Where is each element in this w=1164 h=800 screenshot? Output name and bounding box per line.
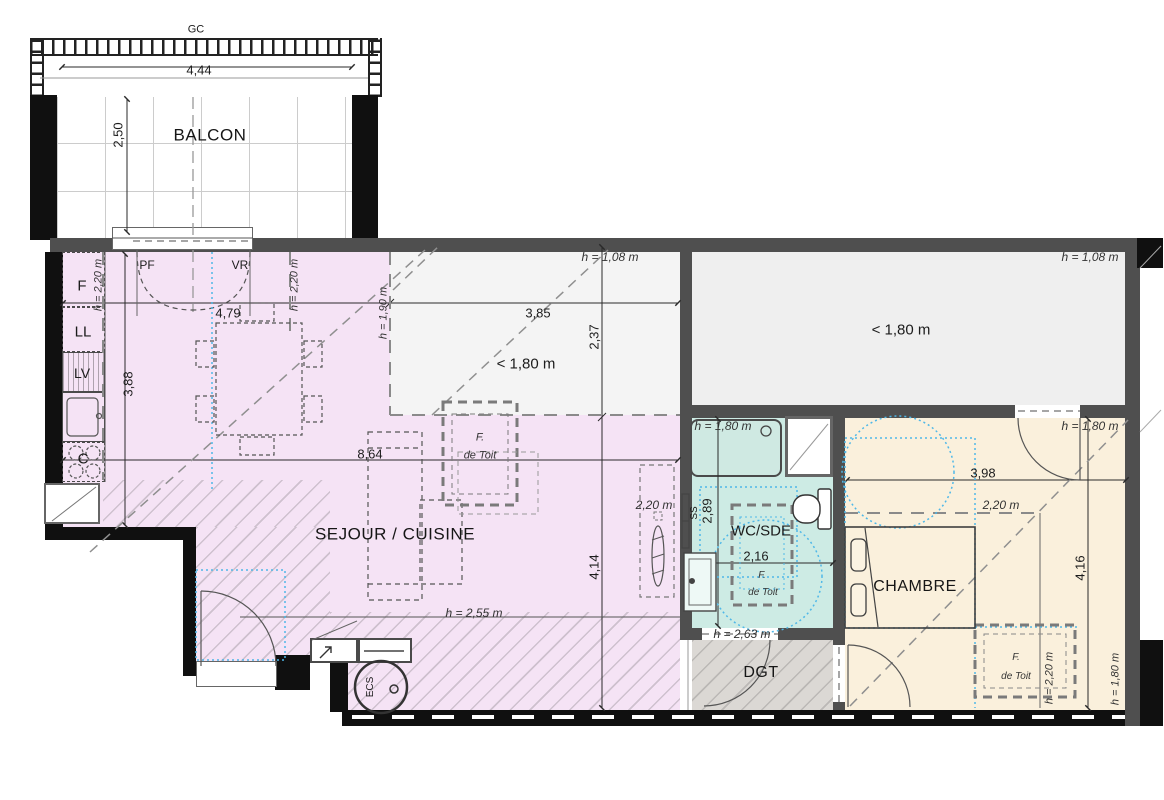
- balcony-floor: [57, 97, 352, 240]
- entry-door-sill: [196, 661, 277, 687]
- height-mid-108: h = 1,08 m: [581, 251, 638, 263]
- wall-right: [1125, 252, 1140, 726]
- room-label-sejour: SEJOUR / CUISINE: [315, 526, 475, 543]
- room-label-wc: WC/SDE: [731, 524, 791, 539]
- balcony-railing-top: [30, 38, 378, 56]
- roof-window-wc-l2: de Toit: [748, 588, 778, 598]
- height-wc-180: h = 1,80 m: [694, 420, 751, 432]
- floor-plan: GC 4,44 2,50 BALCON PF VR h = 2,20 m h =…: [0, 0, 1164, 800]
- balcony-wall-right: [352, 95, 378, 240]
- wall-mid-horizontal-left: [680, 405, 1015, 418]
- label-gc: GC: [188, 25, 205, 36]
- balcony-wall-left: [30, 95, 57, 240]
- entry-shelf: [358, 638, 412, 663]
- chambre-side-door-opening: [833, 645, 845, 702]
- dim-balcony-width: 4,44: [186, 64, 211, 77]
- wall-right-black-bottom: [1140, 640, 1163, 726]
- wall-wc-chambre-stub: [833, 702, 845, 710]
- height-right-108: h = 1,08 m: [1061, 251, 1118, 263]
- roof-window-wc-l1: F.: [758, 571, 766, 581]
- balcony-door-sill: [112, 227, 253, 250]
- label-vr: VR: [232, 259, 249, 271]
- label-dishwasher: LV: [74, 366, 90, 380]
- dim-living-left-depth: 3,88: [122, 371, 135, 396]
- window-left-wall: [44, 483, 100, 524]
- height-living-190: h = 1,90 m: [379, 287, 390, 339]
- low-height-hatch-left: [103, 480, 330, 527]
- zone-label-low-right: < 1,80 m: [872, 323, 931, 338]
- height-bed-door-180: h = 1,80 m: [1061, 420, 1118, 432]
- wall-notch-horizontal: [45, 527, 196, 540]
- label-water-heater: ECS: [366, 677, 376, 698]
- wall-bottom-dashes: [352, 715, 1157, 719]
- label-pf: PF: [139, 259, 154, 271]
- height-radiator-220: 2,20 m: [636, 499, 673, 511]
- dim-living-depth: 4,14: [588, 554, 601, 579]
- dim-living-width: 4,79: [215, 307, 240, 320]
- shower-box: [785, 416, 833, 477]
- label-washing-machine: LL: [75, 325, 92, 340]
- dim-bedroom-depth: 4,16: [1074, 555, 1087, 580]
- height-kitchen-right: h = 2,20 m: [290, 259, 301, 311]
- room-label-balcon: BALCON: [174, 127, 247, 144]
- dim-mid-width: 3,85: [525, 307, 550, 320]
- height-living-255: h = 2,55 m: [445, 607, 502, 619]
- roof-window-chambre-l1: F.: [1012, 653, 1020, 663]
- dim-bedroom-width: 3,98: [970, 467, 995, 480]
- dim-mid-depth: 2,37: [588, 324, 601, 349]
- label-cooktop: C: [78, 452, 89, 467]
- zone-low-mid: [390, 252, 680, 415]
- wall-entry-stub: [275, 655, 310, 690]
- wall-wc-chambre: [833, 405, 845, 645]
- wall-bottom-left-stub: [330, 663, 348, 712]
- zone-label-low-mid: < 1,80 m: [497, 357, 556, 372]
- dim-wc-width: 2,16: [743, 550, 768, 563]
- room-label-chambre: CHAMBRE: [873, 579, 957, 595]
- height-kitchen-left: h = 2,20 m: [94, 259, 105, 311]
- label-fridge: F: [77, 279, 86, 294]
- wall-notch-vertical: [183, 540, 196, 676]
- height-bed-right-180: h = 1,80 m: [1111, 653, 1122, 705]
- dim-wc-depth: 2,89: [701, 498, 714, 523]
- height-wc-263: h = 2,63 m: [713, 628, 770, 640]
- electrical-panel: [310, 638, 358, 663]
- label-towel-rail: SS: [690, 506, 700, 519]
- roof-window-sejour-l2: de Toit: [464, 451, 497, 462]
- room-label-dgt: DGT: [743, 665, 778, 681]
- dim-total-width: 8,64: [357, 448, 382, 461]
- chambre-door-opening: [1015, 405, 1080, 418]
- balcony-railing-right: [368, 38, 382, 97]
- balcony-railing-left: [30, 38, 44, 97]
- wall-wc-bottom-left: [680, 628, 702, 640]
- roof-window-sejour-l1: F.: [476, 433, 484, 444]
- dim-balcony-depth: 2,50: [112, 122, 125, 147]
- height-bed-roof-220: h = 2,20 m: [1045, 652, 1056, 704]
- roof-window-chambre-l2: de Toit: [1001, 672, 1031, 682]
- height-bed-220-line: 2,20 m: [983, 499, 1020, 511]
- wall-right-black-top: [1137, 238, 1163, 268]
- kitchen-sink-unit: [62, 392, 105, 442]
